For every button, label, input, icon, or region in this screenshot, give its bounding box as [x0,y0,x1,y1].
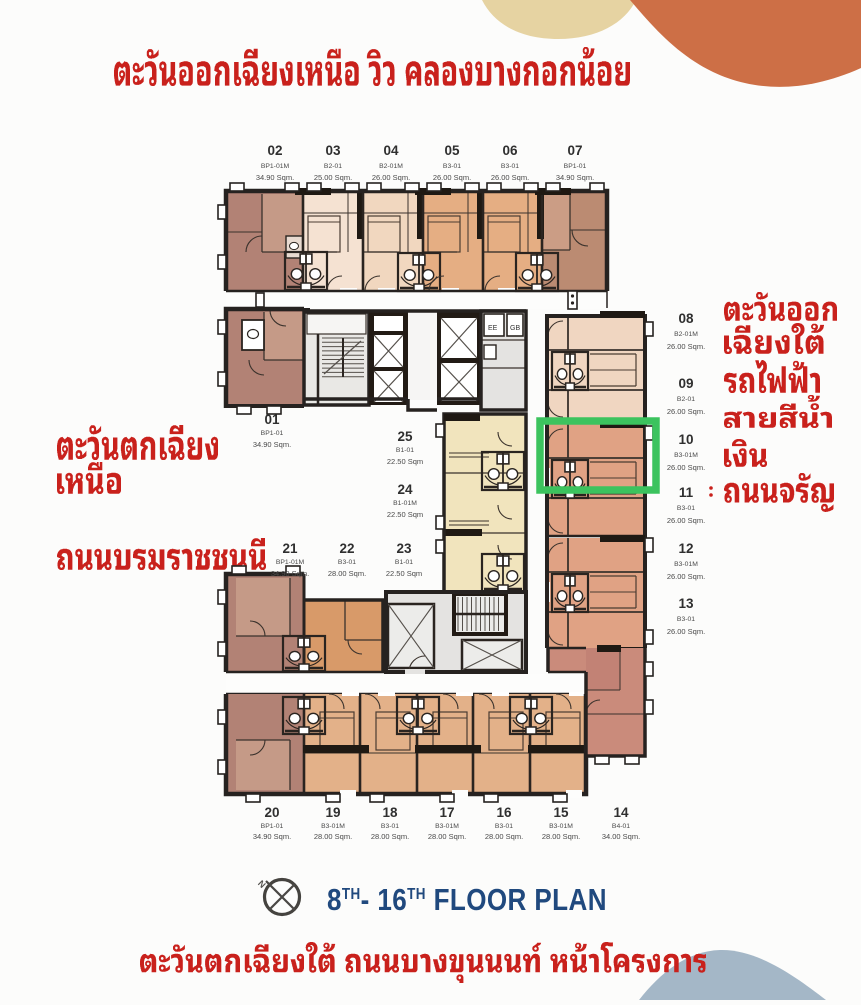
svg-text:06: 06 [502,143,518,158]
svg-text:08: 08 [678,311,694,326]
svg-text:19: 19 [325,805,340,820]
svg-text:11: 11 [679,485,694,500]
svg-text:34.90 Sqm.: 34.90 Sqm. [253,832,291,841]
svg-text:12: 12 [678,541,693,556]
svg-text:25: 25 [397,429,413,444]
svg-text:B3-01: B3-01 [381,823,399,830]
svg-text:B2-01M: B2-01M [379,163,403,170]
svg-text:EE: EE [488,325,498,332]
svg-text:B3-01M: B3-01M [674,452,698,459]
svg-text:B3-01M: B3-01M [435,823,459,830]
svg-text:10: 10 [678,432,693,447]
svg-text:28.00 Sqm.: 28.00 Sqm. [485,832,523,841]
svg-text:B1-01: B1-01 [396,447,414,454]
svg-text:24: 24 [397,482,413,497]
svg-text:26.00 Sqm.: 26.00 Sqm. [372,173,410,182]
svg-text:28.00 Sqm.: 28.00 Sqm. [314,832,352,841]
svg-text:15: 15 [553,805,569,820]
svg-text:B3-01: B3-01 [677,616,695,623]
svg-text:B2-01M: B2-01M [674,331,698,338]
svg-text:B2-01: B2-01 [677,396,695,403]
svg-text:34.00 Sqm.: 34.00 Sqm. [602,832,640,841]
svg-text:28.00 Sqm.: 28.00 Sqm. [542,832,580,841]
svg-text:B3-01: B3-01 [495,823,513,830]
svg-text:09: 09 [678,376,693,391]
svg-text:20: 20 [264,805,279,820]
svg-text:BP1-01: BP1-01 [261,430,284,437]
svg-text:B3-01M: B3-01M [674,561,698,568]
svg-text:07: 07 [567,143,582,158]
svg-text:B3-01: B3-01 [501,163,519,170]
svg-text:04: 04 [383,143,399,158]
svg-text:BP1-01: BP1-01 [564,163,587,170]
svg-text:B3-01: B3-01 [677,505,695,512]
svg-text:34.90 Sqm.: 34.90 Sqm. [271,569,309,578]
svg-text:34.90 Sqm.: 34.90 Sqm. [256,173,294,182]
svg-text:B2-01: B2-01 [324,163,342,170]
svg-text:GB: GB [510,325,520,332]
svg-text:01: 01 [264,412,280,427]
svg-text:B3-01M: B3-01M [549,823,573,830]
svg-text:26.00 Sqm.: 26.00 Sqm. [667,407,705,416]
svg-text:BP1-01M: BP1-01M [276,559,305,566]
svg-text:28.00 Sqm.: 28.00 Sqm. [371,832,409,841]
svg-text:26.00 Sqm.: 26.00 Sqm. [667,516,705,525]
svg-text:26.00 Sqm.: 26.00 Sqm. [667,627,705,636]
svg-text:05: 05 [444,143,460,158]
svg-text:28.00 Sqm.: 28.00 Sqm. [328,569,366,578]
svg-text:B3-01: B3-01 [338,559,356,566]
svg-text:26.00 Sqm.: 26.00 Sqm. [667,342,705,351]
svg-text:26.00 Sqm.: 26.00 Sqm. [491,173,529,182]
svg-text:26.00 Sqm.: 26.00 Sqm. [667,572,705,581]
svg-text:14: 14 [613,805,629,820]
svg-text:B3-01: B3-01 [443,163,461,170]
svg-text:BP1-01M: BP1-01M [261,163,290,170]
svg-text:21: 21 [282,541,298,556]
svg-text:22.50 Sqm: 22.50 Sqm [387,510,423,519]
svg-text:03: 03 [325,143,341,158]
svg-text:02: 02 [267,143,282,158]
svg-text:18: 18 [382,805,398,820]
svg-text:22: 22 [339,541,354,556]
svg-text:B3-01M: B3-01M [321,823,345,830]
svg-text:B1-01M: B1-01M [393,500,417,507]
svg-text:25.00 Sqm.: 25.00 Sqm. [314,173,352,182]
svg-text:22.50 Sqm: 22.50 Sqm [386,569,422,578]
svg-text:34.90 Sqm.: 34.90 Sqm. [253,440,291,449]
svg-text:26.00 Sqm.: 26.00 Sqm. [433,173,471,182]
svg-text:16: 16 [496,805,512,820]
svg-text:BP1-01: BP1-01 [261,823,284,830]
svg-text:28.00 Sqm.: 28.00 Sqm. [428,832,466,841]
svg-text:17: 17 [439,805,454,820]
svg-text:B1-01: B1-01 [395,559,413,566]
svg-text:23: 23 [396,541,412,556]
svg-text:B4-01: B4-01 [612,823,630,830]
svg-text:8TH- 16TH FLOOR PLAN: 8TH- 16TH FLOOR PLAN [327,883,607,918]
svg-text:22.50 Sqm: 22.50 Sqm [387,457,423,466]
svg-text:13: 13 [678,596,694,611]
svg-text:26.00 Sqm.: 26.00 Sqm. [667,463,705,472]
svg-text:34.90 Sqm.: 34.90 Sqm. [556,173,594,182]
